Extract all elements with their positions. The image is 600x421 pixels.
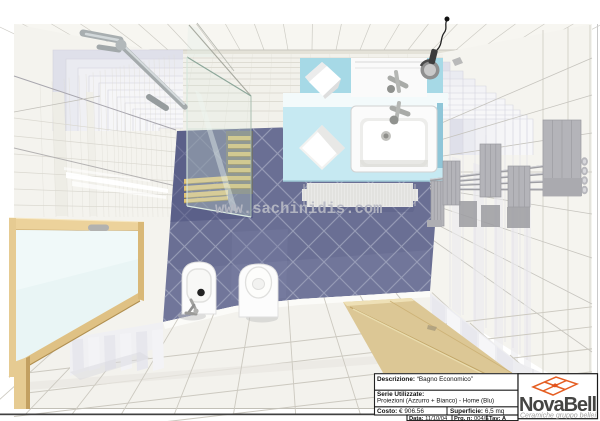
svg-text:Data: 11/10/04: Data: 11/10/04 xyxy=(409,416,448,421)
svg-text:Tav: A: Tav: A xyxy=(489,416,507,421)
svg-text:Prg. n: 004/E: Prg. n: 004/E xyxy=(454,416,489,421)
svg-text:www.sachinidis.com: www.sachinidis.com xyxy=(215,200,382,218)
svg-text:Superficie: 6,5 mq: Superficie: 6,5 mq xyxy=(450,408,505,415)
svg-text:Costo: € 906.56: Costo: € 906.56 xyxy=(377,408,424,415)
svg-text:Proiezioni (Azzurro + Bianco): Proiezioni (Azzurro + Bianco) - Home (Bl… xyxy=(377,398,494,405)
svg-text:Descrizione: “Bagno Economico”: Descrizione: “Bagno Economico” xyxy=(377,376,473,383)
svg-text:Ceramiche gruppo bellei: Ceramiche gruppo bellei xyxy=(520,413,596,420)
